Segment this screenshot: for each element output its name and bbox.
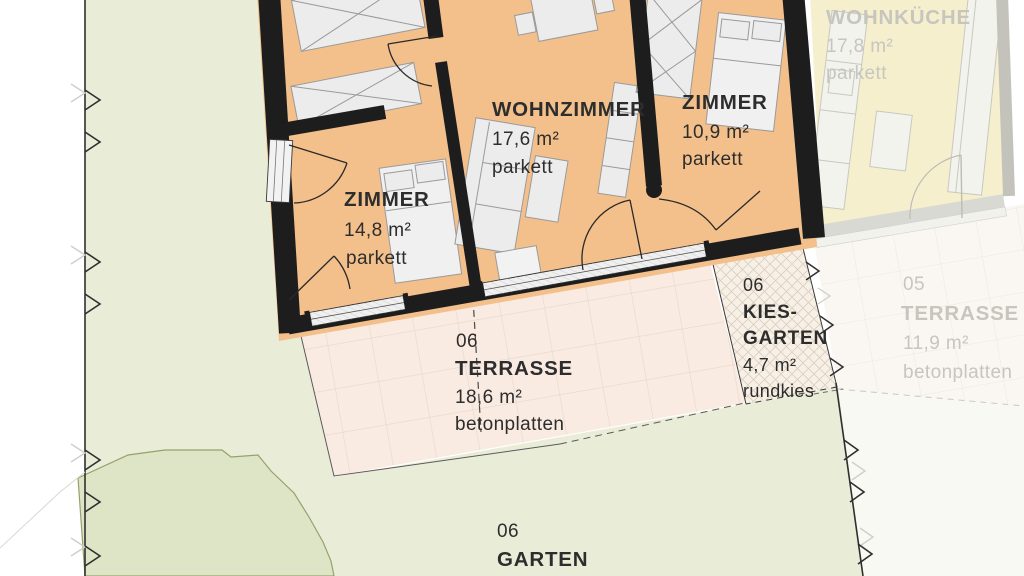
label-zimmer-left-name: ZIMMER: [344, 188, 430, 211]
label-terrasse-name: TERRASSE: [455, 357, 573, 380]
label-zimmer-right-area: 10,9 m²: [682, 122, 749, 143]
label-wohnzimmer-name: WOHNZIMMER: [492, 98, 646, 121]
label-terrasse-floor: betonplatten: [455, 414, 564, 435]
label-wohnkueche-area: 17,8 m²: [826, 36, 893, 57]
label-garten-name: GARTEN: [497, 548, 588, 571]
label-kiesgarten-floor: rundkies: [743, 381, 814, 401]
wall-interior-stub: [430, 0, 436, 38]
label-wohnkueche-name: WOHNKÜCHE: [826, 6, 971, 29]
label-kiesgarten-name1: KIES-: [743, 302, 798, 323]
label-kiesgarten-area: 4,7 m²: [743, 355, 796, 375]
label-kiesgarten-number: 06: [743, 275, 764, 295]
label-terrasse-area: 18,6 m²: [455, 387, 522, 408]
wall-neighbor-faded: [1002, 0, 1009, 196]
furniture-neighbor-table: [870, 111, 913, 171]
label-wohnzimmer-floor: parkett: [492, 157, 553, 178]
wall-interior-b-end: [646, 182, 662, 198]
label-garten-number: 06: [497, 521, 519, 542]
label-wohnkueche-floor: parkett: [826, 63, 887, 84]
floor-plan-viewport: WOHNZIMMER 17,6 m² parkett ZIMMER 14,8 m…: [0, 0, 1024, 576]
label-wohnzimmer-area: 17,6 m²: [492, 129, 559, 150]
floor-plan: WOHNZIMMER 17,6 m² parkett ZIMMER 14,8 m…: [0, 0, 1024, 576]
label-zimmer-left-area: 14,8 m²: [344, 220, 411, 241]
label-terrasse05-area: 11,9 m²: [903, 333, 969, 354]
label-terrasse05-number: 05: [903, 274, 925, 295]
label-zimmer-right-name: ZIMMER: [682, 91, 768, 114]
label-zimmer-left-floor: parkett: [346, 248, 407, 269]
label-kiesgarten-name2: GARTEN: [743, 328, 828, 349]
neighbor-ground-right: [838, 389, 1024, 576]
label-terrasse-number: 06: [456, 331, 478, 352]
label-terrasse05-floor: betonplatten: [903, 362, 1012, 383]
label-zimmer-right-floor: parkett: [682, 149, 743, 170]
label-terrasse05-name: TERRASSE: [901, 302, 1019, 325]
window-left-wall: [266, 139, 292, 202]
